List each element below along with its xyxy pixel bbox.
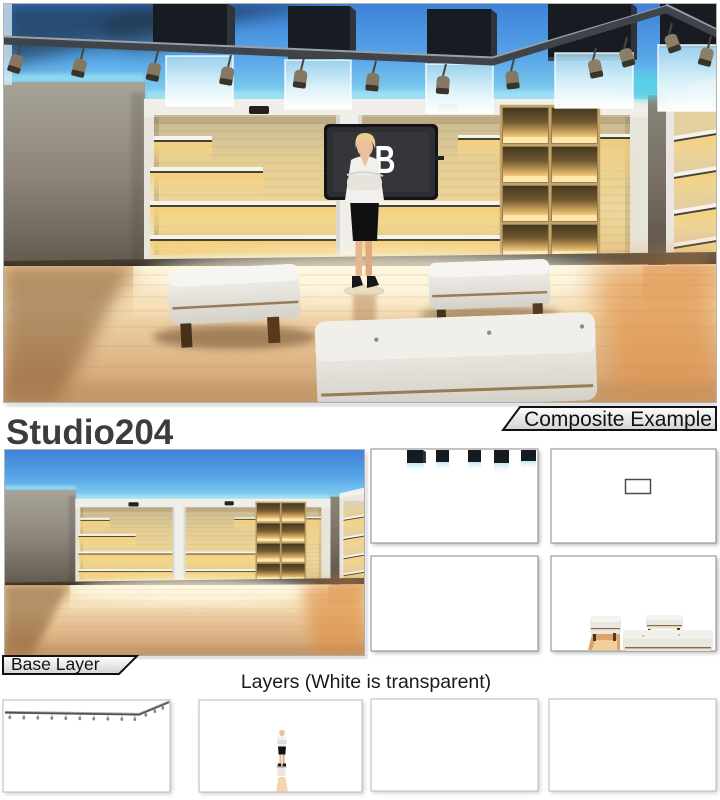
svg-text:Base Layer: Base Layer (11, 654, 100, 674)
svg-text:Composite Example: Composite Example (524, 408, 712, 431)
svg-text:Layers (White is transparent): Layers (White is transparent) (241, 671, 491, 693)
svg-text:Studio204: Studio204 (6, 413, 174, 452)
